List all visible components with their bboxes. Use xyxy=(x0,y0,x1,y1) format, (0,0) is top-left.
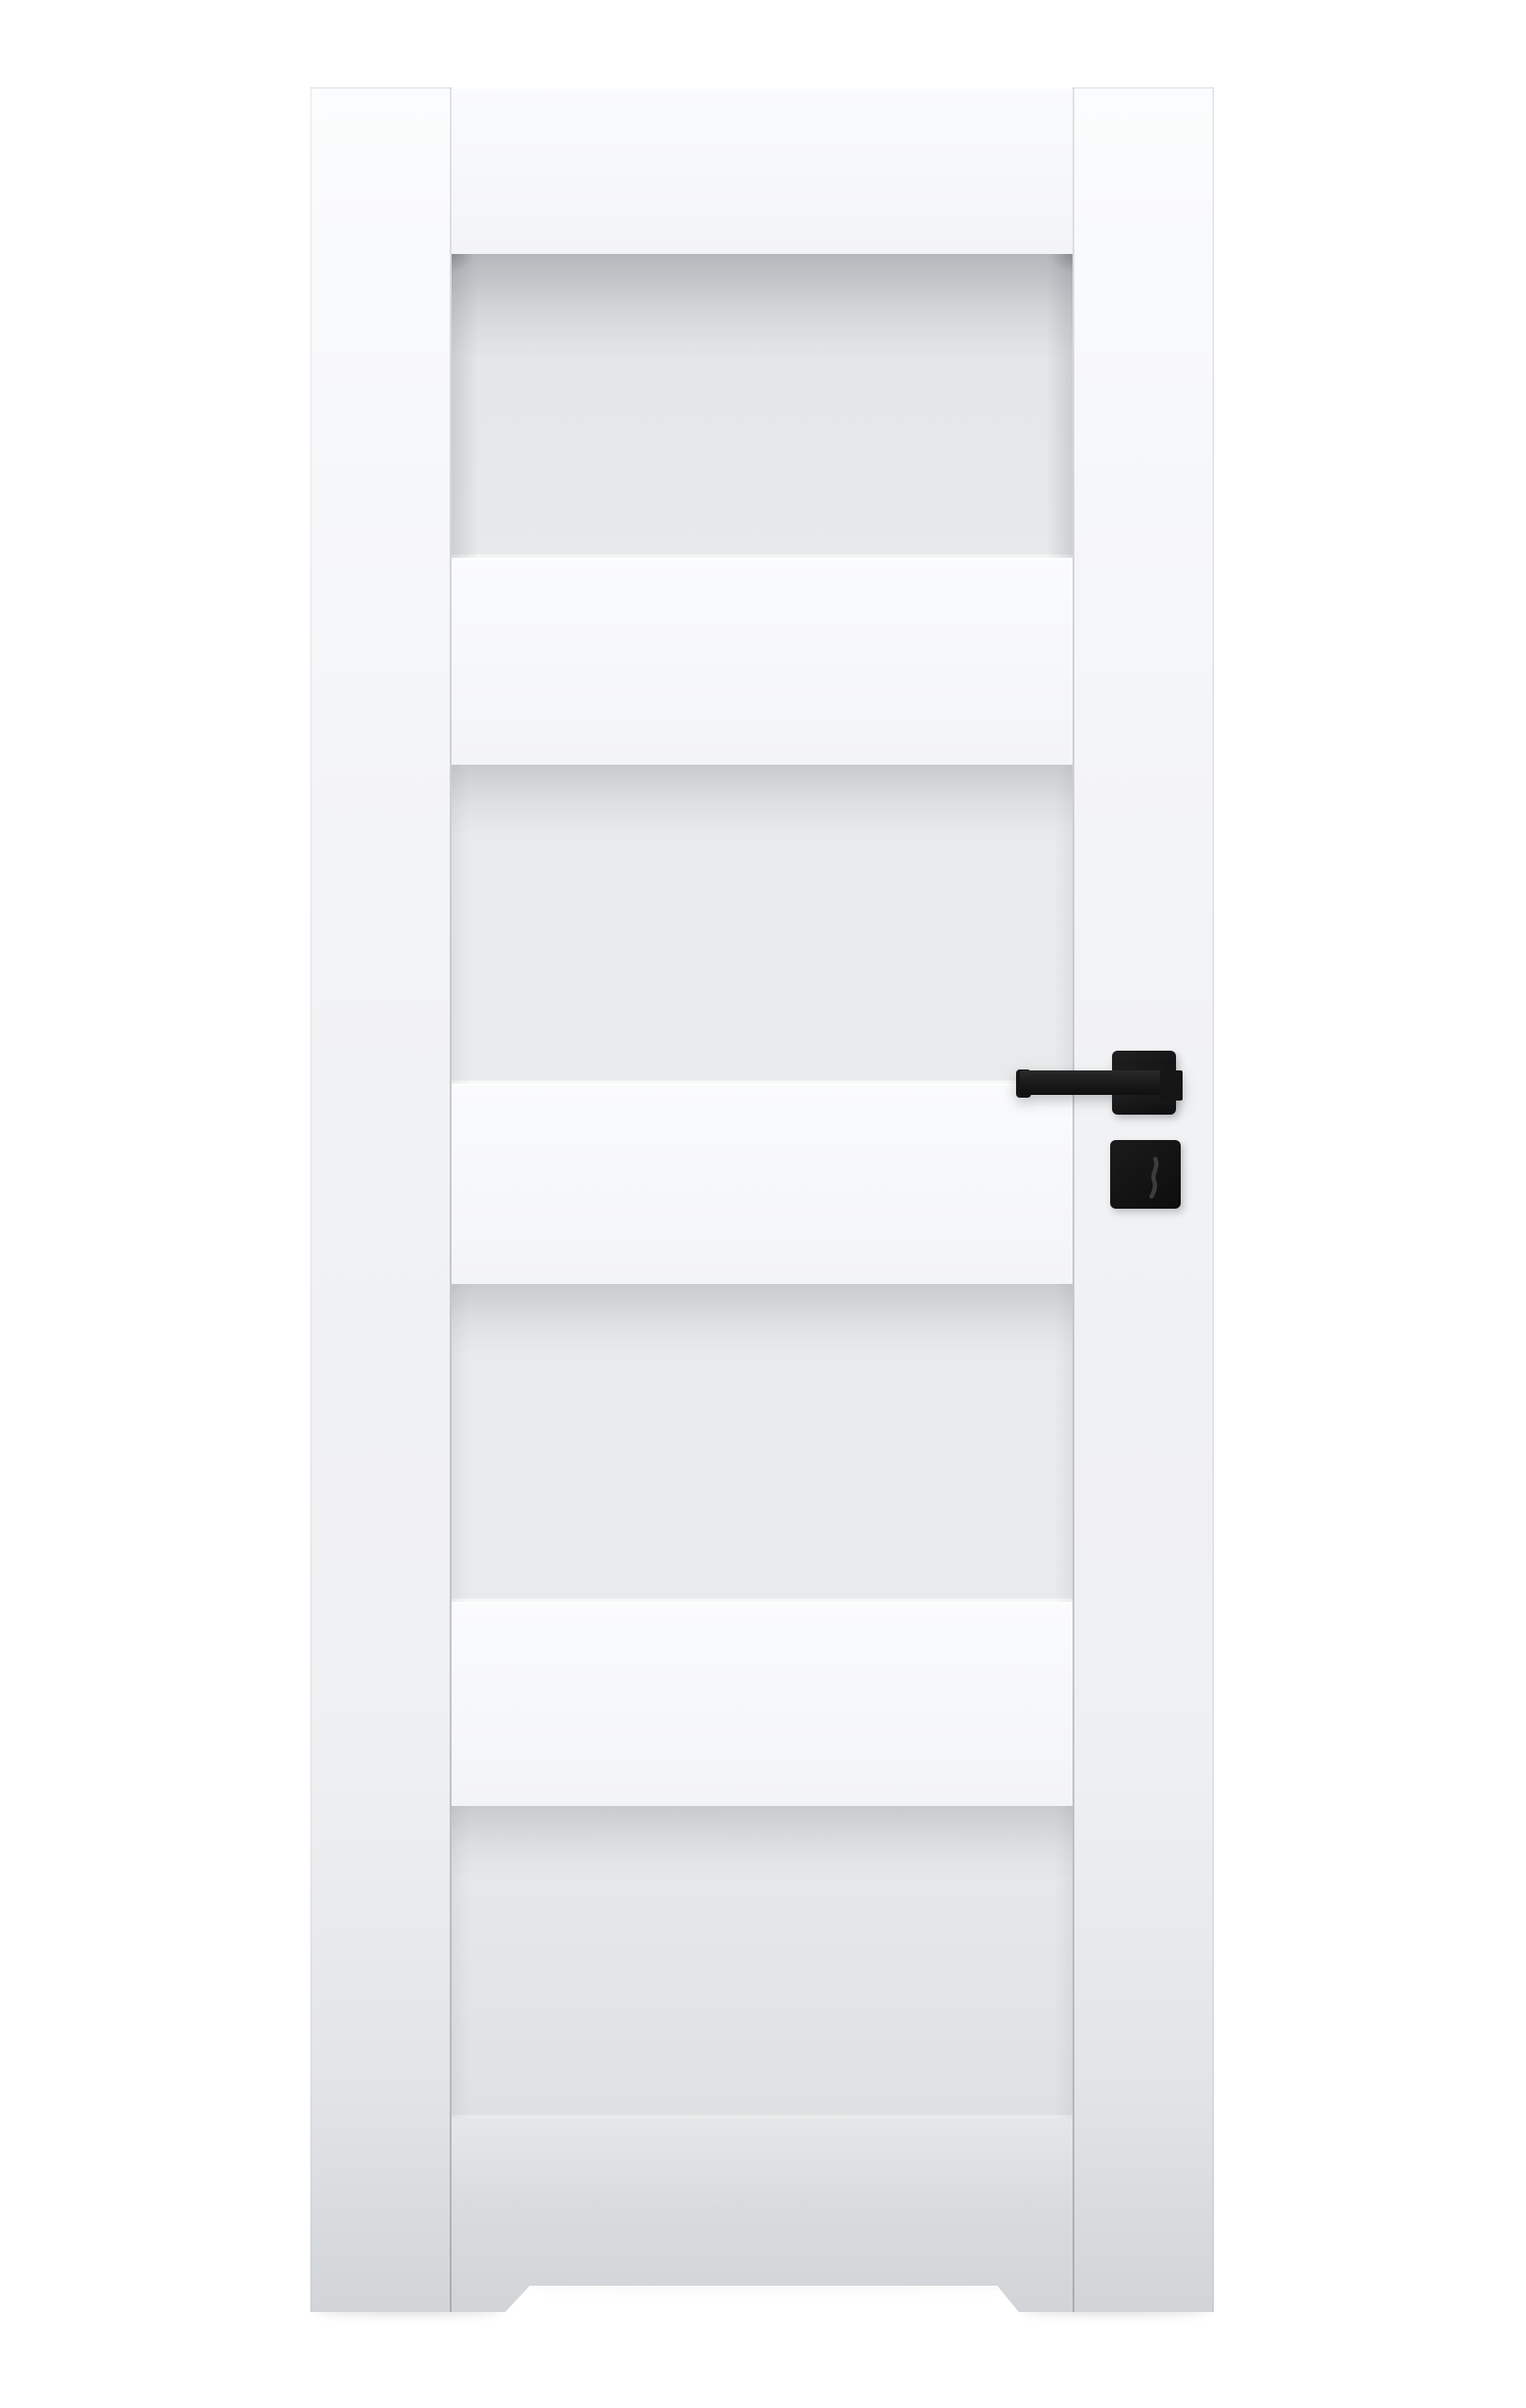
band-rail-3 xyxy=(452,1602,1073,1808)
band-rail-2 xyxy=(452,1084,1073,1286)
band-panel-2 xyxy=(452,1284,1073,1603)
product-photo-stage xyxy=(0,0,1526,2408)
door-leaf xyxy=(310,87,1214,2312)
handle-lever xyxy=(1016,1069,1185,1101)
left-stile xyxy=(310,87,450,2312)
stile-seam-right xyxy=(1073,87,1074,2312)
band-bottom-rail xyxy=(452,2118,1073,2312)
band-top-rail xyxy=(452,87,1073,256)
band-panel-1 xyxy=(452,765,1073,1085)
lock-escutcheon xyxy=(1110,1140,1181,1209)
lever-neck xyxy=(1160,1070,1183,1101)
band-panel-3 xyxy=(452,1806,1073,2119)
keyhole-slot-icon xyxy=(1110,1140,1181,1209)
lever-bar xyxy=(1020,1070,1172,1095)
stile-seam-left xyxy=(450,87,452,2312)
band-glass-panel xyxy=(452,254,1073,559)
band-rail-1 xyxy=(452,558,1073,767)
